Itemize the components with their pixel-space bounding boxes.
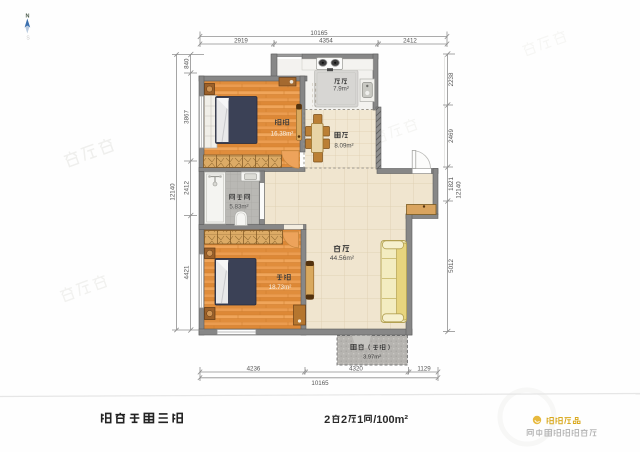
svg-text:10165: 10165: [311, 380, 329, 387]
svg-text:1129: 1129: [417, 366, 431, 373]
svg-text:2412: 2412: [184, 181, 191, 195]
svg-text:2412: 2412: [403, 38, 417, 45]
svg-text:/100m²: /100m²: [373, 414, 408, 426]
svg-text:18.73m²: 18.73m²: [269, 284, 292, 291]
svg-text:8.09m²: 8.09m²: [334, 143, 353, 150]
svg-text:44.56m²: 44.56m²: [330, 255, 355, 262]
svg-text:3867: 3867: [184, 110, 191, 124]
svg-text:4354: 4354: [319, 38, 333, 45]
svg-text:10165: 10165: [310, 30, 328, 37]
svg-text:5.83m²: 5.83m²: [229, 204, 248, 211]
svg-text:2919: 2919: [234, 38, 248, 45]
svg-text:4421: 4421: [184, 265, 191, 279]
svg-text:N: N: [26, 14, 30, 20]
svg-text:2469: 2469: [448, 129, 455, 143]
svg-text:12140: 12140: [456, 181, 463, 199]
svg-text:1: 1: [357, 414, 363, 426]
svg-text:1821: 1821: [448, 177, 455, 191]
svg-text:2: 2: [341, 414, 347, 426]
svg-text:16.38m²: 16.38m²: [271, 131, 294, 138]
svg-text:7.9m²: 7.9m²: [333, 86, 349, 93]
svg-text:4236: 4236: [247, 366, 261, 373]
svg-text:5012: 5012: [448, 259, 455, 273]
svg-text:4320: 4320: [349, 366, 363, 373]
svg-text:12140: 12140: [170, 183, 177, 201]
svg-text:840: 840: [184, 58, 191, 69]
svg-text:2: 2: [324, 414, 330, 426]
svg-text:3.97m²: 3.97m²: [363, 355, 381, 361]
svg-text:2238: 2238: [448, 72, 455, 86]
